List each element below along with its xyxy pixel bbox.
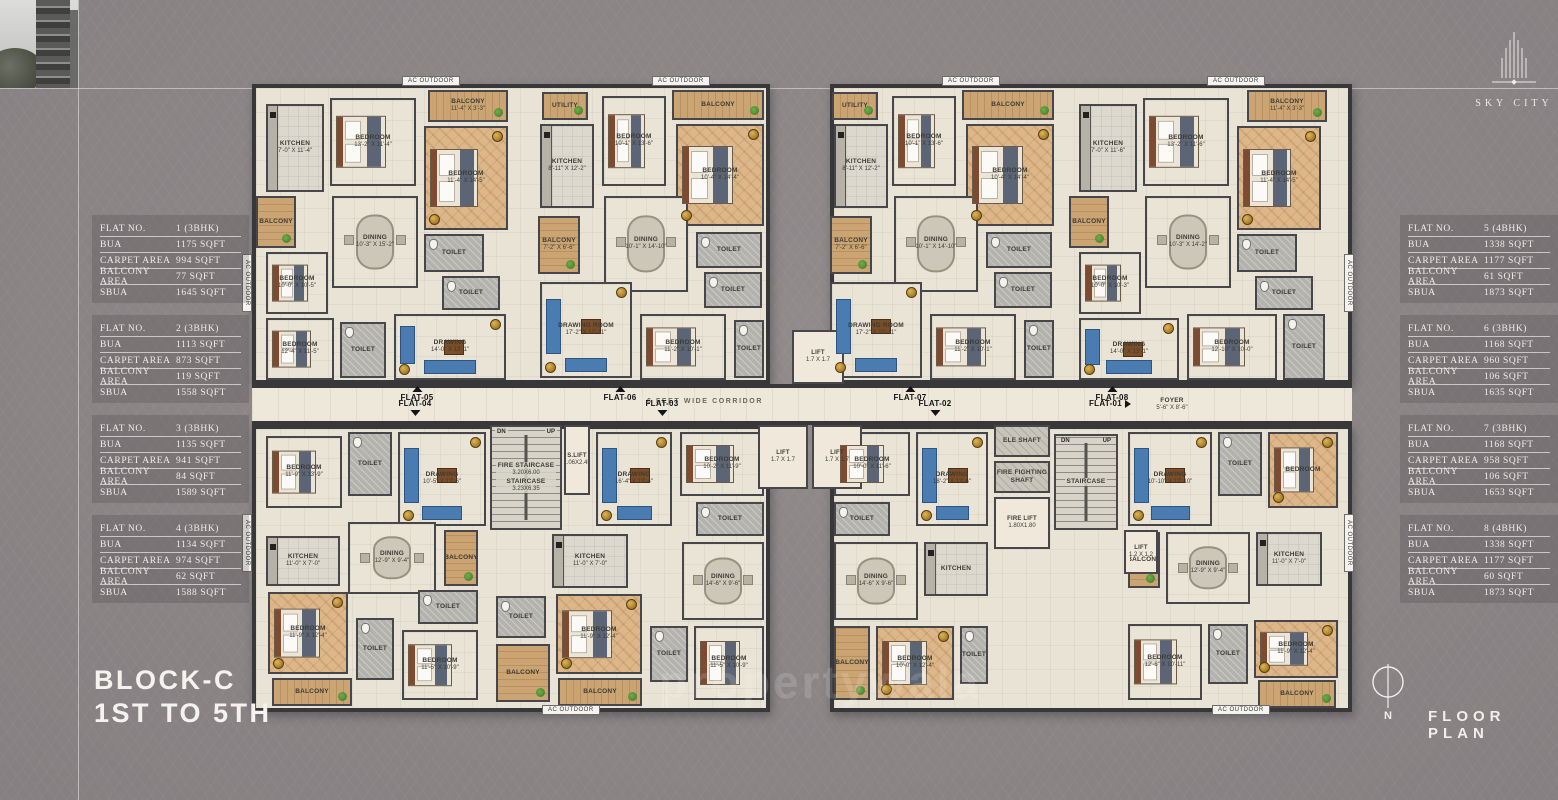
room-name: DRAWING ROOM (848, 322, 904, 330)
table-row-value: 106 SQFT (1484, 372, 1550, 382)
ceiling-light-icon (1322, 625, 1333, 636)
room-name: TOILET (1272, 289, 1296, 297)
room-name: DRAWING (423, 471, 461, 479)
room-label: BALCONY (835, 659, 869, 667)
room-label: BEDROOM10'-1" X 13'-6" (905, 133, 943, 149)
table-row-value: 77 SQFT (176, 272, 241, 282)
ceiling-light-icon (921, 510, 932, 521)
room-name: UTILITY (842, 102, 868, 110)
room-dims: 18'-2" X 13'-6" (933, 479, 971, 487)
room-label: BALCONY (295, 688, 329, 696)
ac-outdoor-tag: AC OUTDOOR (1344, 254, 1354, 312)
stair-dn-label: DN (495, 429, 508, 435)
table-row-value: 6 (3BHK) (1484, 324, 1550, 334)
room-name: DINING (1169, 234, 1207, 242)
room-toilet: TOILET (442, 276, 500, 310)
room-label: BEDROOM12'-10" X 10'-0" (1211, 339, 1252, 355)
room-label: KITCHEN7'-0" X 11'-6" (1091, 140, 1125, 156)
ac-outdoor-tag: AC OUTDOOR (1344, 514, 1354, 572)
room-label: BEDROOM10'-4" X 14'-4" (991, 167, 1029, 183)
room-utility: UTILITY (832, 92, 878, 120)
room-drawing: DRAWING14'-0" X 13'-1" (1079, 318, 1179, 380)
chair-furniture (360, 553, 370, 563)
room-toilet: TOILET (704, 272, 762, 308)
room-dims: 11'-5" X 10'-9" (710, 663, 747, 671)
chair-furniture (896, 575, 906, 585)
room-name: S.LIFT (564, 453, 590, 461)
room-label: BEDROOM10'-0" X 12'-4" (896, 655, 934, 671)
sofa-furniture (565, 358, 607, 372)
chair-furniture (1178, 563, 1188, 573)
ceiling-light-icon (1259, 662, 1270, 673)
room-lift: LIFT1.7 X 1.7 (758, 425, 808, 489)
table-row-label: CARPET AREA (1408, 556, 1484, 566)
room-dims: 11'-2" X 10'-1" (664, 347, 701, 355)
room-label: DINING10'-1" X 14'-10" (915, 236, 956, 252)
ceiling-light-icon (1305, 131, 1316, 142)
ceiling-light-icon (906, 287, 917, 298)
north-indicator: N (1362, 660, 1414, 715)
room-label: BEDROOM10'-2" X 11'-9" (703, 456, 740, 472)
sofa-furniture (1085, 329, 1100, 365)
room-label: TOILET (1011, 286, 1035, 294)
room-name: BEDROOM (1145, 654, 1186, 662)
room-label: LIFT1.7 X 1.7 (806, 350, 830, 365)
ceiling-light-icon (545, 362, 556, 373)
table-row: SBUA1645 SQFT (100, 285, 241, 300)
chair-furniture (666, 237, 676, 247)
room-dining: DINING10'-3" X 14'-2" (1145, 196, 1231, 288)
flat-info-tables-left: FLAT NO.1 (3BHK)BUA1175 SQFTCARPET AREA9… (92, 215, 249, 615)
table-row: FLAT NO.1 (3BHK) (100, 221, 241, 237)
room-label: TOILET (737, 345, 761, 353)
table-row-label: SBUA (1408, 388, 1484, 398)
room-label: BEDROOM11'-9" X 12'-4" (580, 626, 617, 642)
table-row-label: BALCONY AREA (100, 367, 176, 387)
chair-furniture (906, 237, 916, 247)
room-name: KITCHEN (1272, 551, 1306, 559)
room-dining: DINING10'-3" X 15'-2" (332, 196, 418, 288)
room-dining: DINING10'-1" X 14'-10" (894, 196, 978, 292)
table-row: FLAT NO.3 (3BHK) (100, 421, 241, 437)
room-toilet: TOILET (994, 272, 1052, 308)
room-toilet: TOILET (1218, 432, 1262, 496)
room-label: BEDROOM11'-5" X 10'-9" (710, 655, 747, 671)
flat-info-table: FLAT NO.5 (4BHK)BUA1338 SQFTCARPET AREA1… (1400, 215, 1558, 303)
room-drawing: DRAWING18'-2" X 13'-6" (916, 432, 988, 526)
room-label: TOILET (1272, 289, 1296, 297)
room-name: FIRE FIGHTING SHAFT (996, 469, 1048, 485)
room-toilet: TOILET (696, 232, 762, 268)
entrance-arrow-icon (930, 410, 940, 416)
ceiling-light-icon (681, 210, 692, 221)
room-balcony: BALCONY7'-2" X 6'-6" (830, 216, 872, 274)
room-dims: 10'-3" X 14'-2" (1169, 242, 1207, 250)
chair-furniture (414, 553, 424, 563)
table-row-value: 1135 SQFT (176, 440, 241, 450)
table-row-value: 1113 SQFT (176, 340, 241, 350)
ceiling-light-icon (1322, 437, 1333, 448)
room-bedroom: BEDROOM10'-0" X 10'-5" (266, 252, 328, 314)
room-name: TOILET (657, 650, 681, 658)
room-kitchen: KITCHEN11'-0" X 7'-0" (552, 534, 628, 588)
room-label: DINING10'-3" X 14'-2" (1169, 234, 1207, 250)
room-name: DINING (859, 573, 894, 581)
building-photo (0, 0, 78, 88)
room-name: BEDROOM (1285, 466, 1320, 474)
entrance-arrow-icon (412, 386, 422, 392)
room-name: BALCONY (701, 101, 735, 109)
room-bedroom: BEDROOM12'-8" X 10'-11" (1128, 624, 1202, 700)
room-balcony: BALCONY (496, 644, 550, 702)
room-label: BALCONY (701, 101, 735, 109)
room-label: KITCHEN (941, 565, 971, 573)
room-label: DRAWING18'-2" X 13'-6" (933, 471, 971, 487)
room-drawing: DRAWING16'-4" X 13'-4" (596, 432, 672, 526)
room-name: BALCONY (506, 669, 540, 677)
room-bedroom: BEDROOM12'-4" X 11'-5" (266, 318, 334, 380)
room-label: DINING10'-3" X 15'-2" (356, 234, 394, 250)
table-row: FLAT NO.8 (4BHK) (1408, 521, 1550, 537)
room-label: UTILITY (842, 102, 868, 110)
table-row-label: BALCONY AREA (1408, 267, 1484, 287)
room-staircase: DNUPSTAIRCASE (1054, 434, 1118, 530)
chair-furniture (1209, 235, 1219, 245)
room-label: BEDROOM11'-2" X 10'-1" (664, 339, 701, 355)
room-name: DINING (625, 236, 666, 244)
room-fire-lift: FIRE LIFT1.80X1.80 (994, 497, 1050, 549)
table-row-label: FLAT NO. (1408, 424, 1484, 434)
room-name: BALCONY (834, 237, 868, 245)
room-name: BEDROOM (615, 133, 653, 141)
room-name: LIFT (771, 450, 795, 458)
table-row: BUA1168 SQFT (1408, 437, 1550, 453)
room-lift: LIFT1.2 X 1.2 (1124, 530, 1158, 574)
room-dims: 10'-1" X 13'-6" (905, 141, 943, 149)
room-name: TOILET (436, 603, 460, 611)
floor-plan-label: FLOOR PLAN (1428, 708, 1558, 742)
room-kitchen: KITCHEN7'-0" X 11'-6" (1079, 104, 1137, 192)
table-row-value: 1645 SQFT (176, 288, 241, 298)
room-label: TOILET (657, 650, 681, 658)
room-dims: 11'-0" X 7'-0" (1272, 559, 1306, 567)
room-label: TOILET (850, 515, 874, 523)
room-toilet: TOILET (650, 626, 688, 682)
table-row-label: CARPET AREA (100, 356, 176, 366)
table-row-label: CARPET AREA (1408, 356, 1484, 366)
room-toilet: TOILET (696, 502, 764, 536)
room-label: BALCONY (991, 101, 1025, 109)
room-label: STAIRCASE (1065, 478, 1108, 486)
room-label: BEDROOM10'-0" X 10'-3" (1091, 275, 1129, 291)
ceiling-light-icon (1196, 437, 1207, 448)
room-name: TOILET (850, 515, 874, 523)
room-label: FIRE STAIRCASE3.20X6.00STAIRCASE3.23X6.3… (496, 462, 557, 493)
room-name: BEDROOM (853, 456, 890, 464)
room-dims: 12'-4" X 11'-5" (281, 349, 318, 357)
table-row: BUA1338 SQFT (1408, 237, 1550, 253)
room-name: KITCHEN (1091, 140, 1125, 148)
room-name: BEDROOM (1211, 339, 1252, 347)
room-kitchen: KITCHEN (924, 542, 988, 596)
table-row-value: 994 SQFT (176, 256, 241, 266)
room-label: DRAWING14'-0" X 13'-1" (1110, 341, 1148, 357)
table-row-value: 7 (3BHK) (1484, 424, 1550, 434)
room-name: TOILET (1007, 246, 1031, 254)
room-label: DRAWING ROOM17'-2" X 12'-11" (848, 322, 904, 338)
flat-info-table: FLAT NO.6 (3BHK)BUA1168 SQFTCARPET AREA9… (1400, 315, 1558, 403)
room-bedroom: BEDROOM (1268, 432, 1338, 508)
room-name: BALCONY (542, 237, 576, 245)
room-dims: 11'-9" X 12'-4" (580, 634, 617, 642)
room-label: LIFT1.7 X 1.7 (771, 450, 795, 465)
table-row: FLAT NO.7 (3BHK) (1408, 421, 1550, 437)
table-row-label: CARPET AREA (1408, 256, 1484, 266)
flat-marker-flat-04: FLAT-04 (398, 400, 431, 416)
stair-dn-label: DN (1059, 438, 1072, 444)
flat-marker-label: FLAT-02 (918, 399, 951, 408)
entrance-arrow-icon (410, 410, 420, 416)
room-name: LIFT (1129, 545, 1153, 553)
room-drawing: DRAWING10'-10" X 12'-10" (1128, 432, 1212, 526)
room-name: ELE SHAFT (1003, 437, 1041, 445)
table-row-value: 1653 SQFT (1484, 488, 1550, 498)
room-label: BALCONY (444, 554, 478, 562)
room-label: TOILET (1292, 343, 1316, 351)
room-toilet: TOILET (1024, 320, 1054, 378)
flat-marker-flat-01: FLAT-01 (1089, 400, 1131, 408)
table-row-value: 1168 SQFT (1484, 340, 1550, 350)
room-dining: DINING14'-6" X 9'-6" (682, 542, 764, 620)
ceiling-light-icon (561, 658, 572, 669)
room-bedroom: BEDROOM11'-4" X 14'-5" (1237, 126, 1321, 230)
room-name: KITCHEN (573, 553, 607, 561)
room-label: TOILET (363, 645, 387, 653)
room-label: BEDROOM11'-9" X 12'-4" (289, 625, 326, 641)
table-row: BALCONY AREA119 SQFT (100, 369, 241, 385)
tower-edge-image (70, 10, 78, 88)
table-row-value: 941 SQFT (176, 456, 241, 466)
table-row-value: 5 (4BHK) (1484, 224, 1550, 234)
room-name: BEDROOM (896, 655, 934, 663)
room-name: BALCONY (1072, 218, 1106, 226)
room-balcony: BALCONY11'-4" X 3'-3" (1247, 90, 1327, 122)
table-row-label: SBUA (1408, 288, 1484, 298)
room-dims: 14'-0" X 13'-1" (1110, 349, 1148, 357)
room-balcony: BALCONY (272, 678, 352, 706)
room-name: BALCONY (295, 688, 329, 696)
table-row-value: 106 SQFT (1484, 472, 1550, 482)
sky-city-logo: SKY CITY (1470, 28, 1558, 109)
table-row: BUA1168 SQFT (1408, 337, 1550, 353)
room-label: DRAWING ROOM17'-2" X 12'-11" (558, 322, 614, 338)
room-name: DINING (915, 236, 956, 244)
table-row-label: BALCONY AREA (100, 267, 176, 287)
room-dims: 8'-11" X 12'-2" (842, 166, 879, 174)
room-dims: 11'-4" X 3'-3" (451, 106, 485, 114)
room-bedroom: BEDROOM11'-9" X 12'-4" (268, 592, 348, 674)
room-label: TOILET (717, 246, 741, 254)
background-gridline-vertical (78, 0, 79, 800)
room-dims: 3.23X6.35 (498, 486, 555, 494)
table-row-label: SBUA (100, 488, 176, 498)
room-name: BEDROOM (580, 626, 617, 634)
room-dims: 16'-4" X 13'-4" (615, 479, 653, 487)
table-row: SBUA1589 SQFT (100, 485, 241, 500)
room-name: TOILET (721, 286, 745, 294)
room-bedroom: BEDROOM11'-9" X 12'-4" (556, 594, 642, 674)
room-label: KITCHEN11'-0" X 7'-0" (1272, 551, 1306, 567)
tower-image (36, 0, 70, 88)
room-name: TOILET (962, 651, 986, 659)
room-label: TOILET (1007, 246, 1031, 254)
table-row-label: BUA (100, 340, 176, 350)
stair-up-label: UP (545, 429, 557, 435)
room-label: LIFT1.7 X 1.7 (825, 450, 849, 465)
table-row-value: 960 SQFT (1484, 356, 1550, 366)
sofa-furniture (424, 360, 476, 374)
room-dims: 10'-0" X 11'-6" (853, 464, 890, 472)
table-row-label: BALCONY AREA (1408, 367, 1484, 387)
room-label: BEDROOM11'-4" X 14'-5" (447, 170, 484, 186)
room-name: TOILET (358, 460, 382, 468)
room-dims: 7'-0" X 11'-6" (1091, 148, 1125, 156)
room-bedroom: BEDROOM10'-1" X 13'-6" (892, 96, 956, 186)
room-bedroom: BEDROOM13'-2" X 11'-4" (330, 98, 416, 186)
room-name: DRAWING (431, 339, 469, 347)
room-bedroom: BEDROOM13'-2" X 11'-6" (1143, 98, 1229, 186)
room-dims: 11'-4" X 3'-3" (1270, 106, 1304, 114)
ceiling-light-icon (1133, 510, 1144, 521)
room-label: BALCONY (1280, 690, 1314, 698)
room-label: BALCONY (506, 669, 540, 677)
table-row: BUA1113 SQFT (100, 337, 241, 353)
room-label: BEDROOM10'-0" X 11'-6" (853, 456, 890, 472)
room-label: BALCONY11'-4" X 3'-3" (451, 98, 485, 114)
table-row: BALCONY AREA60 SQFT (1408, 569, 1550, 585)
room-label: TOILET (436, 603, 460, 611)
table-row-value: 1873 SQFT (1484, 288, 1550, 298)
room-name: FOYER (1156, 397, 1187, 405)
room-label: BEDROOM13'-2" X 11'-6" (1167, 134, 1204, 150)
room-dims: 3.20X6.00 (498, 470, 555, 478)
room-dims: 10'-1" X 13'-6" (615, 141, 653, 149)
table-row-value: 1 (3BHK) (176, 224, 241, 234)
table-row-label: SBUA (100, 388, 176, 398)
room-name: DINING (375, 550, 410, 558)
room-kitchen: KITCHEN11'-0" X 7'-0" (266, 536, 340, 586)
ac-outdoor-tag: AC OUTDOOR (542, 705, 600, 715)
room-label: TOILET (1255, 249, 1279, 257)
room-balcony: BALCONY (1258, 680, 1336, 708)
room-label: TOILET (962, 651, 986, 659)
room-toilet: TOILET (340, 322, 386, 378)
room-name: TOILET (1255, 249, 1279, 257)
room-name: BALCONY (991, 101, 1025, 109)
chair-furniture (956, 237, 966, 247)
room-name: BEDROOM (278, 275, 316, 283)
table-row-label: CARPET AREA (100, 256, 176, 266)
room-name: TOILET (1027, 345, 1051, 353)
table-row: FLAT NO.2 (3BHK) (100, 321, 241, 337)
ceiling-light-icon (399, 364, 410, 375)
room-name: STAIRCASE (1067, 478, 1106, 486)
chair-furniture (344, 235, 354, 245)
table-row-label: CARPET AREA (100, 456, 176, 466)
sofa-furniture (1151, 506, 1190, 520)
room-label: KITCHEN8'-11" X 12'-2" (548, 158, 585, 174)
room-dims: 1.7 X 1.7 (806, 357, 830, 365)
room-dims: 12'-9" X 9'-4" (375, 558, 410, 566)
room-dims: 7'-2" X 6'-6" (834, 245, 868, 253)
room-fire-staircase: DNUPFIRE STAIRCASE3.20X6.00STAIRCASE3.23… (490, 425, 562, 530)
sofa-furniture (1106, 360, 1152, 374)
table-row-value: 62 SQFT (176, 572, 241, 582)
table-row-label: BUA (100, 540, 176, 550)
room-bedroom: BEDROOM11'-9" X 13'-9" (266, 436, 342, 508)
room-label: BALCONY (259, 218, 293, 226)
table-row-value: 2 (3BHK) (176, 324, 241, 334)
room-name: BEDROOM (281, 341, 318, 349)
flat-marker-label: FLAT-06 (603, 393, 636, 402)
room-balcony: BALCONY (558, 678, 642, 706)
room-name: BEDROOM (1167, 134, 1204, 142)
table-row-label: BUA (1408, 240, 1484, 250)
room-name: BEDROOM (991, 167, 1029, 175)
sofa-furniture (404, 448, 419, 502)
room-label: BEDROOM11'-4" X 14'-5" (1260, 170, 1297, 186)
room-dims: 10'-0" X 10'-5" (278, 283, 316, 291)
room-name: KITCHEN (286, 553, 320, 561)
room-dims: 11'-4" X 14'-5" (1260, 178, 1297, 186)
table-row: BUA1134 SQFT (100, 537, 241, 553)
floor-plan-page: { "branding": {"logo_text": "SKY CITY"},… (0, 0, 1558, 800)
flat-marker-flat-03: FLAT-03 (645, 400, 678, 416)
table-row: SBUA1588 SQFT (100, 585, 241, 600)
room-name: BEDROOM (664, 339, 701, 347)
north-compass-icon (1362, 660, 1414, 710)
table-row-label: BALCONY AREA (1408, 567, 1484, 587)
entrance-arrow-icon (657, 410, 667, 416)
room-ele-shaft: ELE SHAFT (994, 425, 1050, 457)
room-name: BALCONY (583, 688, 617, 696)
room-toilet: TOILET (356, 618, 394, 680)
flat-marker-label: FLAT-04 (398, 399, 431, 408)
room-balcony: BALCONY (834, 626, 870, 700)
room-dims: 10'-2" X 11'-9" (703, 464, 740, 472)
table-row-label: FLAT NO. (100, 324, 176, 334)
room-bedroom: BEDROOM10'-4" X 14'-4" (966, 124, 1054, 226)
ac-outdoor-tag: AC OUTDOOR (942, 76, 1000, 86)
room-name: BALCONY (1270, 98, 1304, 106)
chair-furniture (616, 237, 626, 247)
room-label: BALCONY7'-2" X 6'-6" (834, 237, 868, 253)
room-dims: 10'-0" X 10'-3" (1091, 283, 1129, 291)
flat-marker-label: FLAT-03 (645, 399, 678, 408)
room-balcony: BALCONY (672, 90, 764, 120)
room-name: TOILET (718, 515, 742, 523)
flat-info-tables-right: FLAT NO.5 (4BHK)BUA1338 SQFTCARPET AREA1… (1400, 215, 1558, 615)
room-label: UTILITY (552, 102, 578, 110)
room-name: UTILITY (552, 102, 578, 110)
room-name: BEDROOM (289, 625, 326, 633)
room-name: DINING (1191, 560, 1226, 568)
room-toilet: TOILET (496, 596, 546, 638)
table-row: SBUA1558 SQFT (100, 385, 241, 400)
table-row-value: 1635 SQFT (1484, 388, 1550, 398)
room-dims: 14'-6" X 9'-6" (706, 581, 741, 589)
table-row: SBUA1653 SQFT (1408, 485, 1550, 500)
